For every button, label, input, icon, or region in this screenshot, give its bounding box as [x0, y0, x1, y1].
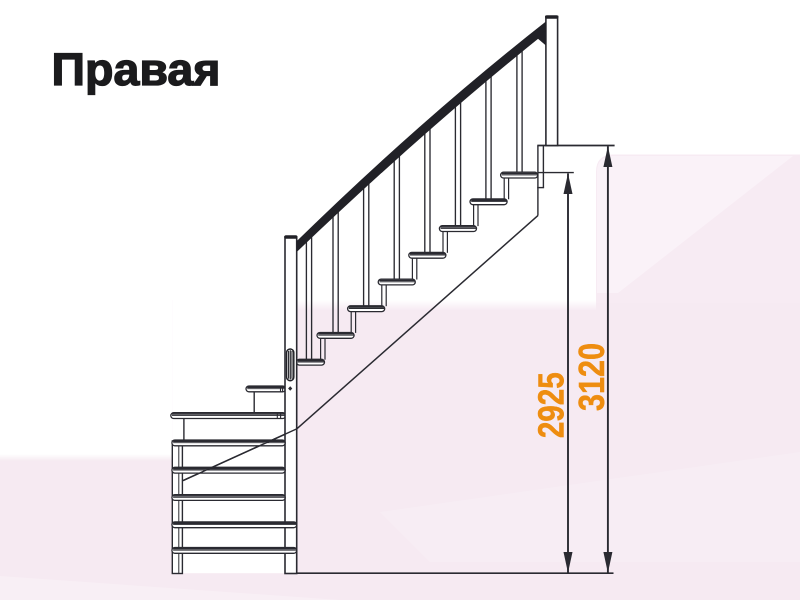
svg-text:2925: 2925 — [531, 372, 571, 438]
svg-text:Правая: Правая — [52, 44, 221, 95]
svg-text:3120: 3120 — [573, 343, 613, 411]
